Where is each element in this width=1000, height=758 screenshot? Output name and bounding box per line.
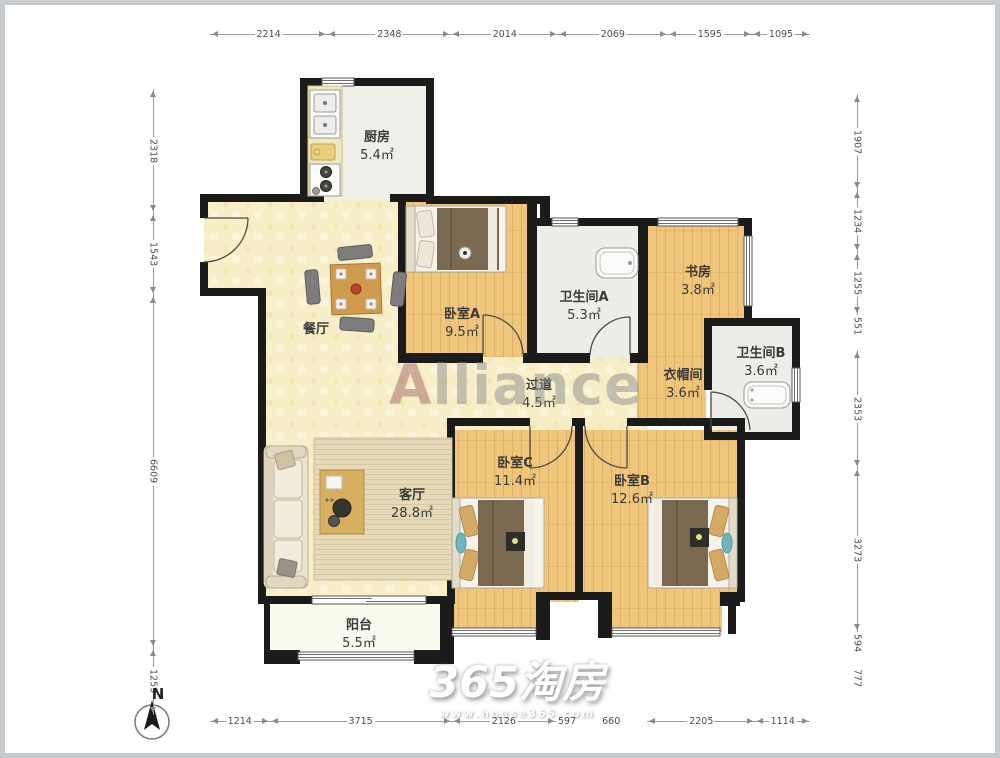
room-label-cloakroom: 衣帽间3.6㎡: [663, 367, 702, 402]
study-right-window: [744, 236, 752, 306]
dimension-segment: 1595: [668, 27, 752, 41]
dimension-segment: 1907: [850, 94, 864, 190]
dimension-segment: 2069: [558, 27, 668, 41]
bed: [452, 498, 544, 588]
compass: N: [133, 685, 183, 703]
balcony-window: [298, 652, 414, 660]
dimension-segment: 2214: [210, 27, 327, 41]
dimension-segment: 2353: [850, 350, 864, 468]
dimension-segment: 3273: [850, 468, 864, 632]
room-label-kitchen: 厨房5.4㎡: [360, 129, 394, 164]
dimension-segment: 6609: [146, 295, 160, 648]
dimension-segment: 1234: [850, 190, 864, 252]
dimension-segment: 1255: [850, 252, 864, 315]
dimension-segment: 2014: [451, 27, 558, 41]
room-label-bedroom-b: 卧室B12.6㎡: [611, 473, 653, 508]
dimension-row-top: 2214 2348 2014 2069 1595 1095: [210, 27, 810, 41]
coffee-table: [320, 470, 364, 534]
site-url-text: www.house365.com: [403, 707, 631, 720]
bedroom-c-bay-window: [452, 628, 536, 636]
room-label-bathroom-b: 卫生间B3.6㎡: [737, 345, 786, 380]
dimension-segment: 2348: [327, 27, 451, 41]
dimension-segment: 777: [850, 667, 864, 710]
bathtub: [596, 248, 638, 278]
dimension-column-left: 2318 1543 6609 1259: [146, 89, 160, 715]
bathroom-a-window: [552, 218, 578, 226]
bed: [648, 498, 737, 588]
dimension-segment: 1214: [210, 714, 270, 728]
dimension-segment: 2205: [647, 714, 755, 728]
compass-north-label: N: [133, 685, 183, 703]
room-label-study: 书房3.8㎡: [681, 264, 715, 299]
room-label-bathroom-a: 卫生间A5.3㎡: [559, 289, 608, 324]
dimension-segment: 2318: [146, 89, 160, 213]
sofa: [264, 446, 308, 588]
study-top-window: [658, 218, 738, 226]
room-label-balcony: 阳台5.5㎡: [342, 617, 376, 652]
room-label-living: 客厅28.8㎡: [391, 487, 433, 522]
floorplan-canvas: 厨房5.4㎡ 餐厅 卧室A9.5㎡ 卫生间A5.3㎡ 书房3.8㎡ 衣帽间3.6…: [5, 5, 995, 753]
watermark-alliance: Alliance: [389, 353, 649, 417]
site-logo-text: 365淘房: [403, 661, 631, 706]
dimension-segment: 594: [850, 632, 864, 667]
kitchen-counter: [308, 86, 342, 196]
room-label-bedroom-c: 卧室C11.4㎡: [494, 455, 536, 490]
dimension-segment: 551: [850, 315, 864, 350]
dimension-segment: 1114: [755, 714, 810, 728]
dimension-segment: 1095: [752, 27, 810, 41]
bathtub: [744, 382, 790, 408]
balcony-slider-door: [312, 596, 426, 604]
bedroom-b-bay-window: [612, 628, 720, 636]
bed: [406, 206, 506, 272]
watermark-site-logo: 365淘房 www.house365.com: [403, 661, 631, 720]
dimension-segment: 1543: [146, 213, 160, 295]
room-label-dining: 餐厅: [303, 321, 329, 339]
kitchen-window: [322, 78, 354, 86]
bathroom-b-window: [792, 368, 800, 402]
dimension-segment: 1259: [146, 648, 160, 715]
room-label-bedroom-a: 卧室A9.5㎡: [444, 306, 480, 341]
dimension-column-right: 1907 1234 1255 551 2353 3273 594 777: [850, 94, 864, 710]
floorplan-page: 厨房5.4㎡ 餐厅 卧室A9.5㎡ 卫生间A5.3㎡ 书房3.8㎡ 衣帽间3.6…: [0, 0, 1000, 758]
